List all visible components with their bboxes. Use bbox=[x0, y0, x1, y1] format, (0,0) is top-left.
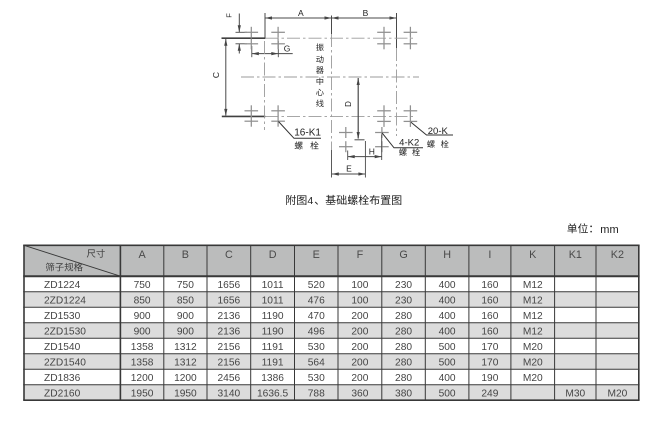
svg-text:M20: M20 bbox=[523, 357, 543, 368]
svg-text:200: 200 bbox=[351, 373, 368, 384]
svg-text:280: 280 bbox=[395, 357, 412, 368]
svg-text:900: 900 bbox=[134, 326, 151, 337]
svg-text:H: H bbox=[443, 249, 451, 261]
svg-text:B: B bbox=[182, 249, 189, 261]
svg-text:530: 530 bbox=[308, 342, 325, 353]
svg-text:F: F bbox=[357, 249, 364, 261]
svg-text:400: 400 bbox=[439, 373, 456, 384]
svg-text:C: C bbox=[211, 72, 221, 78]
svg-text:200: 200 bbox=[351, 311, 368, 322]
svg-text:788: 788 bbox=[308, 388, 325, 399]
svg-text:750: 750 bbox=[134, 280, 151, 291]
svg-text:1190: 1190 bbox=[262, 326, 284, 337]
svg-text:360: 360 bbox=[351, 388, 368, 399]
svg-text:2136: 2136 bbox=[218, 311, 241, 322]
svg-text:3140: 3140 bbox=[218, 388, 241, 399]
svg-text:850: 850 bbox=[134, 295, 151, 306]
svg-text:G: G bbox=[399, 249, 407, 261]
svg-text:1200: 1200 bbox=[174, 373, 197, 384]
svg-text:100: 100 bbox=[351, 280, 368, 291]
svg-text:M20: M20 bbox=[607, 388, 627, 399]
svg-text:4-K2: 4-K2 bbox=[399, 137, 419, 148]
svg-text:1950: 1950 bbox=[174, 388, 197, 399]
svg-text:400: 400 bbox=[439, 280, 456, 291]
svg-text:1386: 1386 bbox=[261, 373, 284, 384]
svg-text:470: 470 bbox=[308, 311, 325, 322]
svg-text:G: G bbox=[284, 43, 291, 53]
svg-text:500: 500 bbox=[439, 388, 456, 399]
svg-text:ZD1224: ZD1224 bbox=[44, 280, 81, 291]
svg-text:1358: 1358 bbox=[131, 357, 154, 368]
svg-text:M12: M12 bbox=[523, 280, 543, 291]
svg-text:2ZD1224: 2ZD1224 bbox=[44, 295, 86, 306]
svg-text:1200: 1200 bbox=[131, 373, 154, 384]
svg-text:mm: mm bbox=[600, 224, 618, 236]
svg-text:476: 476 bbox=[308, 295, 325, 306]
svg-text:496: 496 bbox=[308, 326, 325, 337]
svg-text:160: 160 bbox=[481, 295, 498, 306]
svg-text:ZD2160: ZD2160 bbox=[44, 388, 81, 399]
svg-text:K2: K2 bbox=[611, 249, 624, 261]
svg-text:20-K: 20-K bbox=[428, 126, 449, 137]
svg-text:1191: 1191 bbox=[262, 342, 284, 353]
svg-text:249: 249 bbox=[481, 388, 498, 399]
svg-text:M30: M30 bbox=[565, 388, 585, 399]
svg-text:850: 850 bbox=[177, 295, 194, 306]
svg-text:2ZD1540: 2ZD1540 bbox=[44, 357, 86, 368]
svg-text:16-K1: 16-K1 bbox=[294, 128, 321, 139]
svg-text:M12: M12 bbox=[523, 295, 543, 306]
svg-text:400: 400 bbox=[439, 311, 456, 322]
svg-text:2156: 2156 bbox=[218, 342, 241, 353]
svg-text:750: 750 bbox=[177, 280, 194, 291]
svg-text:900: 900 bbox=[177, 311, 194, 322]
svg-text:2ZD1530: 2ZD1530 bbox=[44, 326, 86, 337]
svg-text:A: A bbox=[298, 8, 304, 18]
svg-text:1358: 1358 bbox=[131, 342, 154, 353]
svg-text:K1: K1 bbox=[569, 249, 582, 261]
svg-text:1191: 1191 bbox=[262, 357, 284, 368]
svg-text:1190: 1190 bbox=[262, 311, 284, 322]
svg-text:ZD1530: ZD1530 bbox=[44, 311, 81, 322]
svg-text:280: 280 bbox=[395, 342, 412, 353]
svg-text:1011: 1011 bbox=[262, 295, 284, 306]
svg-text:K: K bbox=[529, 249, 537, 261]
svg-text:230: 230 bbox=[395, 295, 412, 306]
svg-text:160: 160 bbox=[481, 280, 498, 291]
svg-text:1656: 1656 bbox=[218, 295, 241, 306]
svg-text:200: 200 bbox=[351, 357, 368, 368]
svg-text:E: E bbox=[313, 249, 320, 261]
svg-text:1312: 1312 bbox=[174, 342, 197, 353]
svg-text:160: 160 bbox=[481, 311, 498, 322]
svg-text:564: 564 bbox=[308, 357, 325, 368]
svg-text:E: E bbox=[346, 164, 352, 174]
svg-text:H: H bbox=[369, 146, 375, 156]
svg-text:170: 170 bbox=[481, 357, 498, 368]
svg-text:280: 280 bbox=[395, 373, 412, 384]
svg-text:M12: M12 bbox=[523, 311, 543, 322]
svg-text:D: D bbox=[269, 249, 277, 261]
svg-text:190: 190 bbox=[481, 373, 498, 384]
svg-text:380: 380 bbox=[395, 388, 412, 399]
svg-text:I: I bbox=[488, 249, 491, 261]
svg-text:A: A bbox=[138, 249, 146, 261]
svg-text:2136: 2136 bbox=[218, 326, 241, 337]
svg-text:230: 230 bbox=[395, 280, 412, 291]
svg-text:B: B bbox=[363, 8, 369, 18]
svg-text:100: 100 bbox=[351, 295, 368, 306]
svg-text:C: C bbox=[225, 249, 233, 261]
svg-text:2156: 2156 bbox=[218, 357, 241, 368]
svg-text:280: 280 bbox=[395, 326, 412, 337]
svg-text:ZD1540: ZD1540 bbox=[44, 342, 81, 353]
svg-text:1011: 1011 bbox=[262, 280, 284, 291]
svg-text:ZD1836: ZD1836 bbox=[44, 373, 81, 384]
svg-text:900: 900 bbox=[134, 311, 151, 322]
svg-text:1950: 1950 bbox=[131, 388, 154, 399]
svg-text:M20: M20 bbox=[523, 342, 543, 353]
svg-text:200: 200 bbox=[351, 342, 368, 353]
svg-text:2456: 2456 bbox=[218, 373, 241, 384]
svg-text:400: 400 bbox=[439, 326, 456, 337]
svg-text:520: 520 bbox=[308, 280, 325, 291]
svg-text:D: D bbox=[344, 101, 353, 107]
svg-text:900: 900 bbox=[177, 326, 194, 337]
svg-text:M20: M20 bbox=[523, 373, 543, 384]
svg-text:F: F bbox=[225, 13, 234, 18]
svg-text:500: 500 bbox=[439, 342, 456, 353]
svg-text:1636.5: 1636.5 bbox=[257, 388, 288, 399]
svg-text:4: 4 bbox=[307, 195, 313, 207]
svg-text:M12: M12 bbox=[523, 326, 543, 337]
svg-text:280: 280 bbox=[395, 311, 412, 322]
svg-text:1312: 1312 bbox=[174, 357, 197, 368]
svg-text:200: 200 bbox=[351, 326, 368, 337]
svg-text:170: 170 bbox=[481, 342, 498, 353]
svg-text:1656: 1656 bbox=[218, 280, 241, 291]
svg-text:400: 400 bbox=[439, 295, 456, 306]
svg-text:530: 530 bbox=[308, 373, 325, 384]
svg-text:160: 160 bbox=[481, 326, 498, 337]
svg-text:500: 500 bbox=[439, 357, 456, 368]
